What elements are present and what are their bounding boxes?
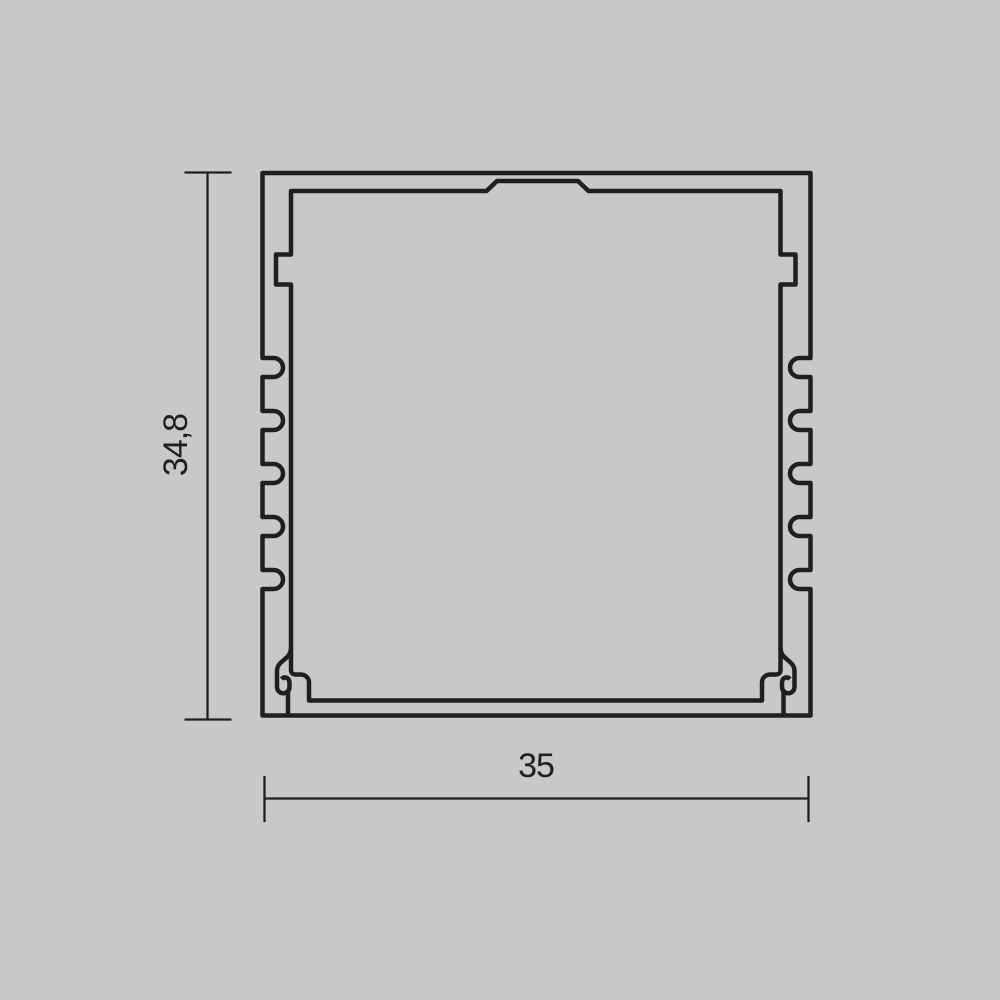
width-dimension-label: 35 — [518, 747, 554, 785]
width-dimension: 35 — [265, 747, 809, 822]
height-dimension: 34,8 — [157, 173, 232, 720]
profile-outer-contour — [263, 173, 811, 716]
profile-geometry — [263, 173, 811, 716]
profile-drawing: 34,8 35 — [0, 0, 1000, 1000]
height-dimension-label: 34,8 — [157, 414, 195, 476]
profile-inner-contour — [276, 181, 796, 701]
drawing-canvas: 34,8 35 — [0, 0, 1000, 1000]
